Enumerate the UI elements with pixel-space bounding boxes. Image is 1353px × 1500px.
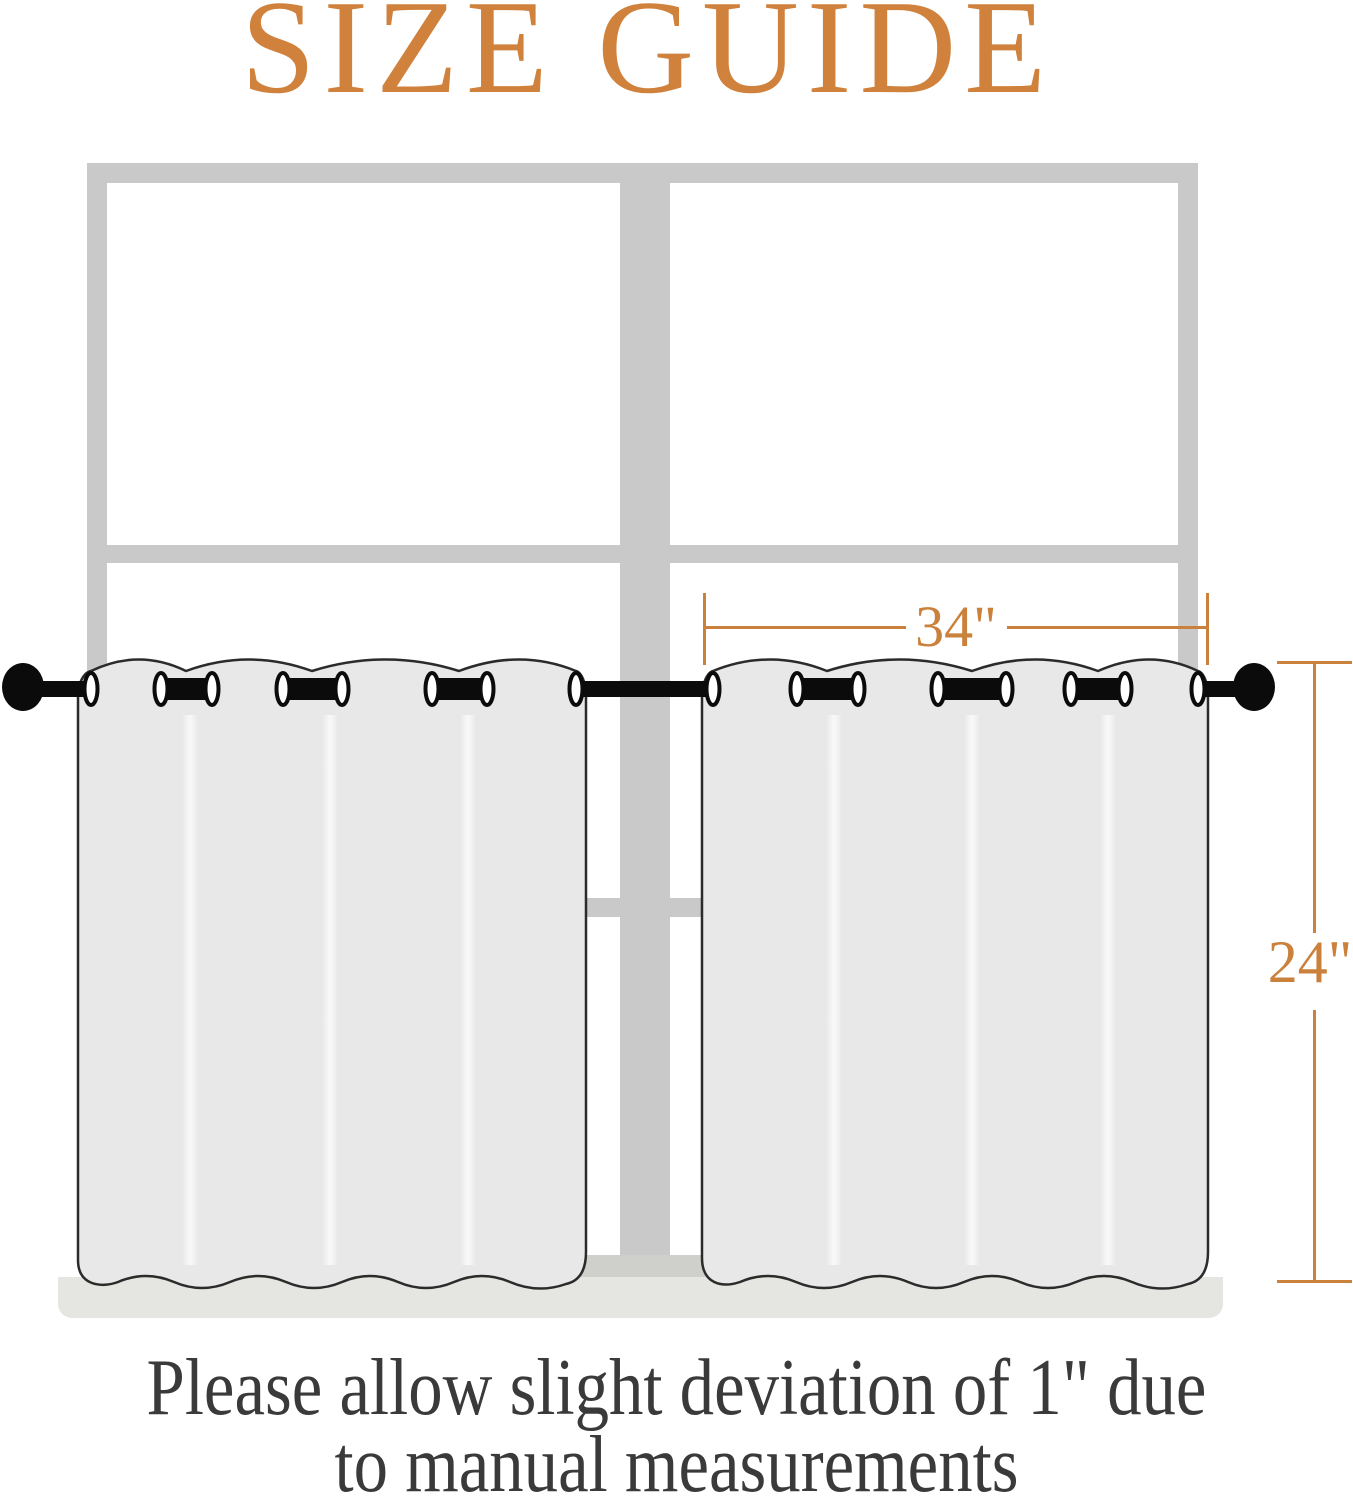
height-dimension-line-bottom — [1313, 1010, 1316, 1282]
size-guide-image: SIZE GUIDE — [0, 0, 1353, 1500]
curtain-panels-graphic — [0, 0, 1353, 1500]
width-dimension-tick-right — [1206, 593, 1209, 665]
curtain-panel-right — [700, 660, 1212, 1289]
fold-highlight — [182, 715, 198, 1265]
width-dimension-line-left — [705, 626, 906, 629]
curtain-panel-left — [70, 660, 590, 1289]
fold-highlight — [1100, 715, 1116, 1265]
width-dimension-tick-left — [703, 593, 706, 665]
fold-highlight — [826, 715, 842, 1265]
width-dimension-line-right — [1007, 626, 1207, 629]
height-dimension-tick-bottom — [1277, 1280, 1352, 1283]
fold-highlight — [322, 715, 338, 1265]
fold-highlight — [964, 715, 980, 1265]
fold-highlight — [460, 715, 476, 1265]
height-dimension-line-top — [1313, 663, 1316, 933]
curtain-fabric-right — [702, 660, 1208, 1289]
height-dimension-label: 24" — [1240, 932, 1353, 992]
